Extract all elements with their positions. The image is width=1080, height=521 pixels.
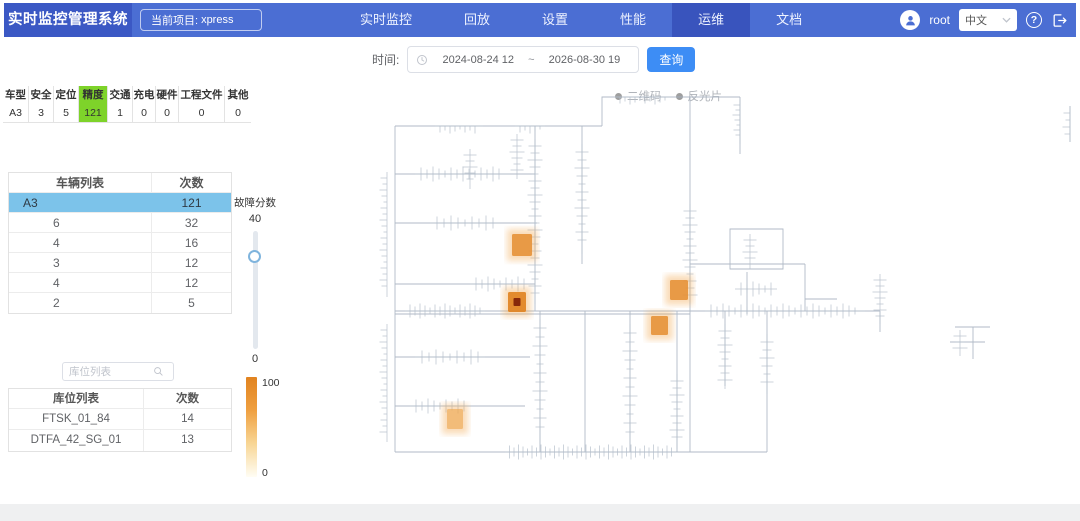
storage-name-cell: DTFA_42_SG_01 xyxy=(9,430,143,451)
stats-tab[interactable]: 充电 xyxy=(133,86,156,104)
storage-table: 库位列表 次数 FTSK_01_8414DTFA_42_SG_0113 xyxy=(8,388,232,452)
nav-item[interactable]: 性能 xyxy=(594,3,672,37)
floor-plan xyxy=(375,84,1075,504)
nav-item[interactable]: 文档 xyxy=(750,3,828,37)
vehicle-count-cell: 121 xyxy=(151,193,231,212)
vehicle-col-header: 车辆列表 xyxy=(9,173,151,192)
vehicle-row[interactable]: 412 xyxy=(9,273,231,293)
project-label: 当前项目: xyxy=(151,12,198,28)
facility-map[interactable]: 二维码反光片 xyxy=(375,84,1075,504)
stats-value: 121 xyxy=(79,104,108,122)
chevron-down-icon xyxy=(1002,17,1011,23)
fault-score-min: 0 xyxy=(232,353,278,365)
app-title: 实时监控管理系统 xyxy=(4,3,132,37)
end-date: 2026-08-30 19 xyxy=(539,54,631,66)
stats-header-row: 车型安全定位精度交通充电硬件工程文件其他 xyxy=(3,86,251,104)
heat-point xyxy=(646,311,673,340)
vehicle-row[interactable]: A3121 xyxy=(9,193,231,213)
project-value: xpress xyxy=(201,14,233,26)
current-project-box[interactable]: 当前项目: xpress xyxy=(140,9,262,31)
gradient-bar xyxy=(246,377,257,477)
rack-marks xyxy=(380,97,1071,460)
language-select[interactable]: 中文 xyxy=(959,9,1017,31)
stats-tab[interactable]: 其他 xyxy=(225,86,251,104)
time-query-bar: 时间: 2024-08-24 12 ~ 2026-08-30 19 查询 xyxy=(372,46,695,73)
fault-score-slider-track[interactable] xyxy=(253,231,258,349)
storage-search-input[interactable] xyxy=(69,366,153,378)
app-window: 实时监控管理系统 当前项目: xpress 实时监控回放设置性能运维文档 roo… xyxy=(0,0,1080,504)
username: root xyxy=(929,13,950,27)
top-navbar: 实时监控管理系统 当前项目: xpress 实时监控回放设置性能运维文档 roo… xyxy=(4,3,1076,37)
date-range-picker[interactable]: 2024-08-24 12 ~ 2026-08-30 19 xyxy=(407,46,639,73)
heat-point xyxy=(507,229,537,261)
vehicle-row[interactable]: 632 xyxy=(9,213,231,233)
vehicle-row[interactable]: 416 xyxy=(9,233,231,253)
vehicle-count-cell: 16 xyxy=(151,233,231,252)
time-label: 时间: xyxy=(372,51,399,68)
nav-item[interactable]: 实时监控 xyxy=(334,3,438,37)
nav-item[interactable]: 设置 xyxy=(516,3,594,37)
vehicle-name-cell: 6 xyxy=(9,213,151,232)
fault-stats-table: 车型安全定位精度交通充电硬件工程文件其他 A33512110000 xyxy=(3,86,251,123)
stats-tab[interactable]: 交通 xyxy=(108,86,133,104)
heat-point xyxy=(503,287,531,317)
heat-point xyxy=(442,404,468,434)
vehicle-count-cell: 5 xyxy=(151,293,231,313)
stats-tab[interactable]: 安全 xyxy=(29,86,54,104)
storage-table-body: FTSK_01_8414DTFA_42_SG_0113 xyxy=(9,409,231,451)
storage-search-box xyxy=(62,362,174,381)
stats-value: 3 xyxy=(29,104,54,122)
stats-tab[interactable]: 车型 xyxy=(3,86,29,104)
help-icon[interactable]: ? xyxy=(1026,12,1042,28)
nav-menu: 实时监控回放设置性能运维文档 xyxy=(334,3,828,37)
count-col-header: 次数 xyxy=(143,389,231,408)
vehicle-count-cell: 12 xyxy=(151,253,231,272)
stats-value: 0 xyxy=(156,104,179,122)
vehicle-row[interactable]: 312 xyxy=(9,253,231,273)
storage-col-header: 库位列表 xyxy=(9,389,143,408)
query-button[interactable]: 查询 xyxy=(647,47,695,72)
storage-name-cell: FTSK_01_84 xyxy=(9,409,143,429)
storage-row[interactable]: DTFA_42_SG_0113 xyxy=(9,430,231,451)
floor-plan-walls xyxy=(395,97,1070,452)
stats-value: 0 xyxy=(133,104,156,122)
vehicle-count-cell: 12 xyxy=(151,273,231,292)
vehicle-name-cell: 2 xyxy=(9,293,151,313)
storage-row[interactable]: FTSK_01_8414 xyxy=(9,409,231,430)
storage-table-header: 库位列表 次数 xyxy=(9,389,231,409)
search-icon xyxy=(153,366,164,377)
stats-value-row: A33512110000 xyxy=(3,104,251,122)
fault-score-slider-handle[interactable] xyxy=(248,250,261,263)
stats-value: 0 xyxy=(179,104,225,122)
language-value: 中文 xyxy=(965,12,987,28)
start-date: 2024-08-24 12 xyxy=(432,54,524,66)
stats-tab[interactable]: 精度 xyxy=(79,86,108,104)
storage-count-cell: 13 xyxy=(143,430,231,451)
stats-value: A3 xyxy=(3,104,29,122)
user-area: root 中文 ? xyxy=(900,3,1068,37)
vehicle-name-cell: A3 xyxy=(9,193,151,212)
vehicle-table-header: 车辆列表 次数 xyxy=(9,173,231,193)
heat-points-layer xyxy=(442,229,693,434)
logout-icon[interactable] xyxy=(1051,12,1068,29)
stats-tab[interactable]: 定位 xyxy=(54,86,79,104)
date-separator: ~ xyxy=(528,54,534,66)
fault-score-max: 40 xyxy=(232,213,278,225)
stats-tab[interactable]: 硬件 xyxy=(156,86,179,104)
vehicle-table: 车辆列表 次数 A312163241631241225 xyxy=(8,172,232,314)
count-col-header: 次数 xyxy=(151,173,231,192)
heat-gradient-legend: 100 0 xyxy=(246,377,286,481)
nav-item[interactable]: 运维 xyxy=(672,3,750,37)
stats-value: 5 xyxy=(54,104,79,122)
fault-score-label: 故障分数 xyxy=(232,195,278,210)
vehicle-name-cell: 3 xyxy=(9,253,151,272)
stats-tab[interactable]: 工程文件 xyxy=(179,86,225,104)
vehicle-name-cell: 4 xyxy=(9,233,151,252)
gradient-min: 0 xyxy=(262,467,268,479)
gradient-max: 100 xyxy=(262,377,280,389)
user-avatar-icon[interactable] xyxy=(900,10,920,30)
nav-item[interactable]: 回放 xyxy=(438,3,516,37)
vehicle-name-cell: 4 xyxy=(9,273,151,292)
clock-icon xyxy=(416,54,428,66)
vehicle-count-cell: 32 xyxy=(151,213,231,232)
storage-count-cell: 14 xyxy=(143,409,231,429)
vehicle-table-body: A312163241631241225 xyxy=(9,193,231,313)
heat-point xyxy=(665,275,693,305)
vehicle-row[interactable]: 25 xyxy=(9,293,231,313)
fault-score-panel: 故障分数 40 0 xyxy=(232,195,278,365)
stats-value: 0 xyxy=(225,104,251,122)
stats-value: 1 xyxy=(108,104,133,122)
